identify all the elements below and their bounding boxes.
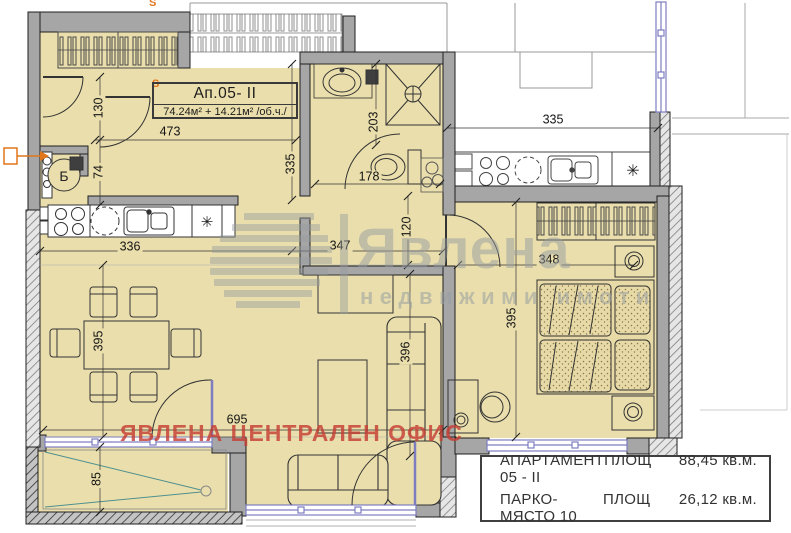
dim-corridor-width: 120 [400, 215, 413, 240]
apartment-info-box: АПАРТАМЕНТ 05 - II ПЛОЩ 88,45 кв.м. ПАРК… [480, 455, 771, 522]
vent-shaft-icon [70, 157, 83, 170]
pillow-icon [615, 286, 650, 334]
floor-plan-page: ✳ ✳ 130 473 74 335 203 178 335 336 347 1… [0, 0, 791, 533]
pillow-icon [615, 340, 650, 390]
hall-wardrobe-icon [58, 32, 178, 68]
dim-bath-side: 335 [284, 152, 297, 177]
dim-living-top-width: 347 [328, 239, 353, 252]
kitchen-star-icon: ✳ [201, 214, 214, 231]
dim-entry-door: 130 [92, 96, 105, 121]
apartment-name: АПАРТАМЕНТ 05 - II [500, 452, 604, 486]
dim-neighbor-width: 335 [541, 113, 566, 126]
apartment-area: 74.24м² + 14.21м² /об.ч./ [154, 105, 296, 118]
bedroom-wardrobe-icon [537, 203, 655, 240]
area-label: ПЛОЩ [603, 491, 665, 508]
dim-living-height: 395 [92, 329, 105, 354]
dim-bath-depth: 203 [367, 110, 380, 135]
bed-icon [537, 280, 654, 394]
neighbor-star-icon: ✳ [626, 163, 639, 180]
living-window [246, 505, 416, 515]
info-row-apartment: АПАРТАМЕНТ 05 - II ПЛОЩ 88,45 кв.м. [500, 452, 757, 486]
dim-terrace-depth: 85 [90, 470, 103, 488]
dim-hall-recess: 74 [92, 163, 105, 181]
dim-bedroom-height: 395 [505, 306, 518, 331]
apartment-area-value: 88,45 кв.м. [666, 452, 757, 469]
neighbor-kitchen-counter [447, 152, 655, 188]
parking-name: ПАРКО-МЯСТО 10 [500, 491, 603, 525]
parking-area-value: 26,12 кв.м. [665, 491, 757, 508]
area-label: ПЛОЩ [604, 452, 666, 469]
boiler-label: Б [59, 168, 68, 184]
info-row-parking: ПАРКО-МЯСТО 10 ПЛОЩ 26,12 кв.м. [500, 491, 757, 525]
dim-wc-width: 178 [357, 170, 382, 183]
kitchen-sink-icon [124, 207, 174, 235]
dim-kitchen-width: 336 [118, 240, 143, 253]
neighbor-sink-icon [548, 156, 598, 184]
dim-bedroom-width: 348 [537, 253, 562, 266]
neighbor-window [656, 2, 666, 112]
dim-sofa-wall: 396 [399, 340, 412, 365]
dim-hall-width: 473 [158, 125, 183, 138]
office-watermark: ЯВЛЕНА ЦЕНТРАЛЕН ОФИС [120, 420, 463, 447]
apartment-title-box: Ап.05- II 74.24м² + 14.21м² /об.ч./ [152, 82, 298, 119]
bedroom-window [487, 440, 627, 451]
s-marker-top: S [149, 0, 156, 9]
apartment-number: Ап.05- II [154, 84, 296, 105]
